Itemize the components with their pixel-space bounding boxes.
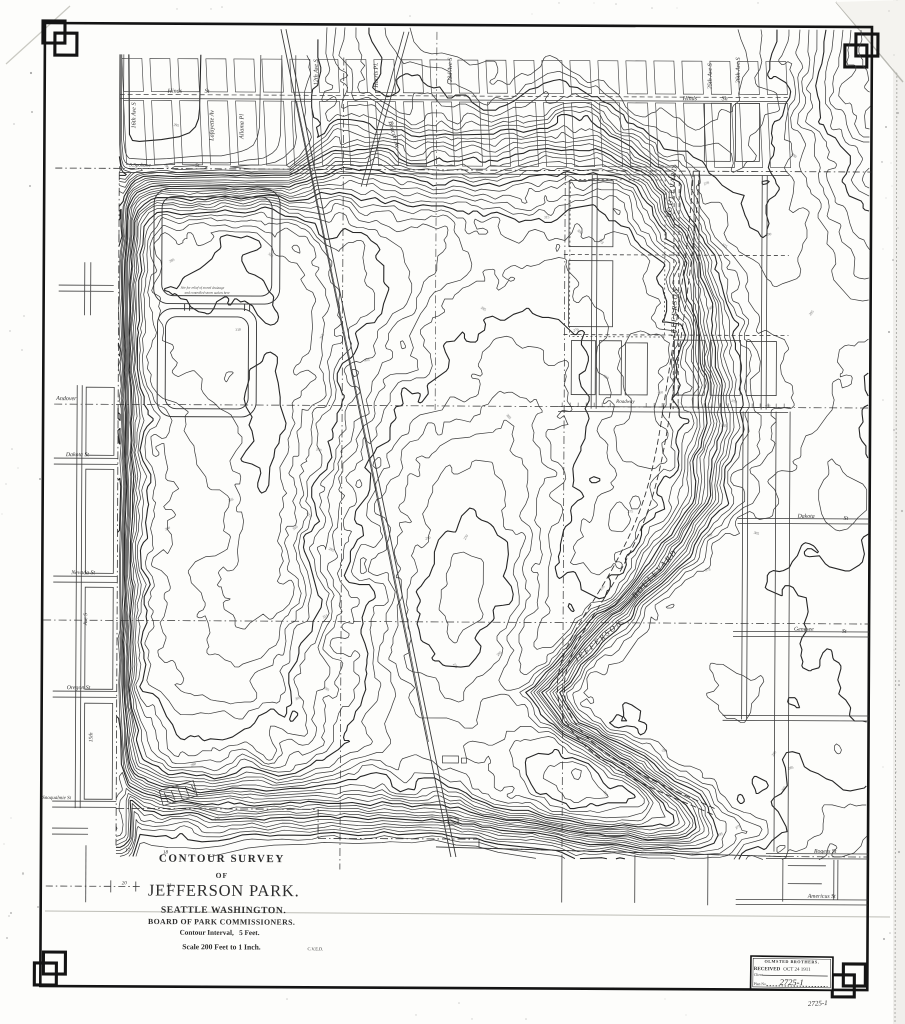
svg-text:Americus St: Americus St [807,894,836,900]
svg-text:Dakota: Dakota [797,514,815,520]
svg-text:2725-1: 2725-1 [780,977,804,987]
svg-text:305: 305 [364,358,370,363]
svg-text:St: St [205,89,210,95]
svg-text:270: 270 [765,404,771,409]
svg-text:25th Ave S: 25th Ave S [707,63,714,89]
svg-text:Genesee: Genesee [794,627,814,633]
svg-text:2725-1: 2725-1 [808,999,828,1008]
svg-text:Allama Pl: Allama Pl [238,114,245,140]
svg-text:Contour Interval, 5 Feet.: Contour Interval, 5 Feet. [180,929,260,937]
svg-text:Sh: Sh [722,96,728,102]
svg-text:26th Ave S: 26th Ave S [735,57,742,83]
svg-text:and controlled storm outlets h: and controlled storm outlets here [185,291,230,295]
svg-text:OLMSTED BROTHERS.: OLMSTED BROTHERS. [764,959,819,965]
svg-text:St: St [844,516,849,522]
svg-text:OCT 24 1911: OCT 24 1911 [783,967,811,972]
svg-text:310: 310 [572,634,578,639]
svg-text:310: 310 [235,328,241,332]
svg-text:Lafayette Av: Lafayette Av [208,110,215,142]
svg-text:SEATTLE WASHINGTON.: SEATTLE WASHINGTON. [161,906,287,917]
svg-text:Hinds: Hinds [682,96,698,102]
svg-text:S.Spokane: S.Spokane [129,162,151,168]
svg-text:22d Ave S: 22d Ave S [447,58,454,82]
svg-text:16th Ave S: 16th Ave S [130,102,137,128]
svg-text:St: St [195,163,200,169]
svg-text:OF: OF [216,871,228,880]
svg-text:Client: Client [754,973,764,977]
svg-text:15th: 15th [88,732,94,742]
svg-text:RECEIVED: RECEIVED [754,967,781,972]
svg-text:12th Ave S: 12th Ave S [313,59,320,85]
svg-text:Andover: Andover [55,396,77,402]
svg-text:Hinds: Hinds [167,89,183,95]
svg-text:17: 17 [125,848,131,853]
svg-text:Snoqualmie St: Snoqualmie St [42,796,71,801]
svg-text:Plan No.: Plan No. [754,982,767,986]
svg-text:Scale 200 Feet to 1 Inch.: Scale 200 Feet to 1 Inch. [182,942,261,951]
svg-text:Ave S: Ave S [83,613,89,626]
svg-text:315: 315 [544,215,550,219]
svg-text:C.V.E.D.: C.V.E.D. [307,946,323,951]
svg-text:CONTOUR SURVEY: CONTOUR SURVEY [159,853,285,866]
svg-text:JEFFERSON PARK.: JEFFERSON PARK. [148,881,300,901]
svg-text:Site for relief of stored drai: Site for relief of stored drainage [181,286,225,290]
svg-text:Dakota St: Dakota St [65,452,89,458]
svg-text:Nevada St: Nevada St [70,570,95,576]
svg-text:Oregon St: Oregon St [67,685,91,691]
svg-text:Harris Pl.: Harris Pl. [373,62,380,88]
svg-text:St: St [842,629,847,635]
svg-text:275: 275 [705,568,711,573]
svg-text:Rogers St: Rogers St [813,849,837,855]
svg-text:20: 20 [122,881,128,886]
svg-text:BOARD OF PARK COMMISSIONERS: BOARD OF PARK COMMISSIONERS. [148,917,295,927]
svg-text:290: 290 [766,232,772,236]
svg-text:Roadway: Roadway [615,400,635,405]
svg-text:275: 275 [627,510,633,514]
